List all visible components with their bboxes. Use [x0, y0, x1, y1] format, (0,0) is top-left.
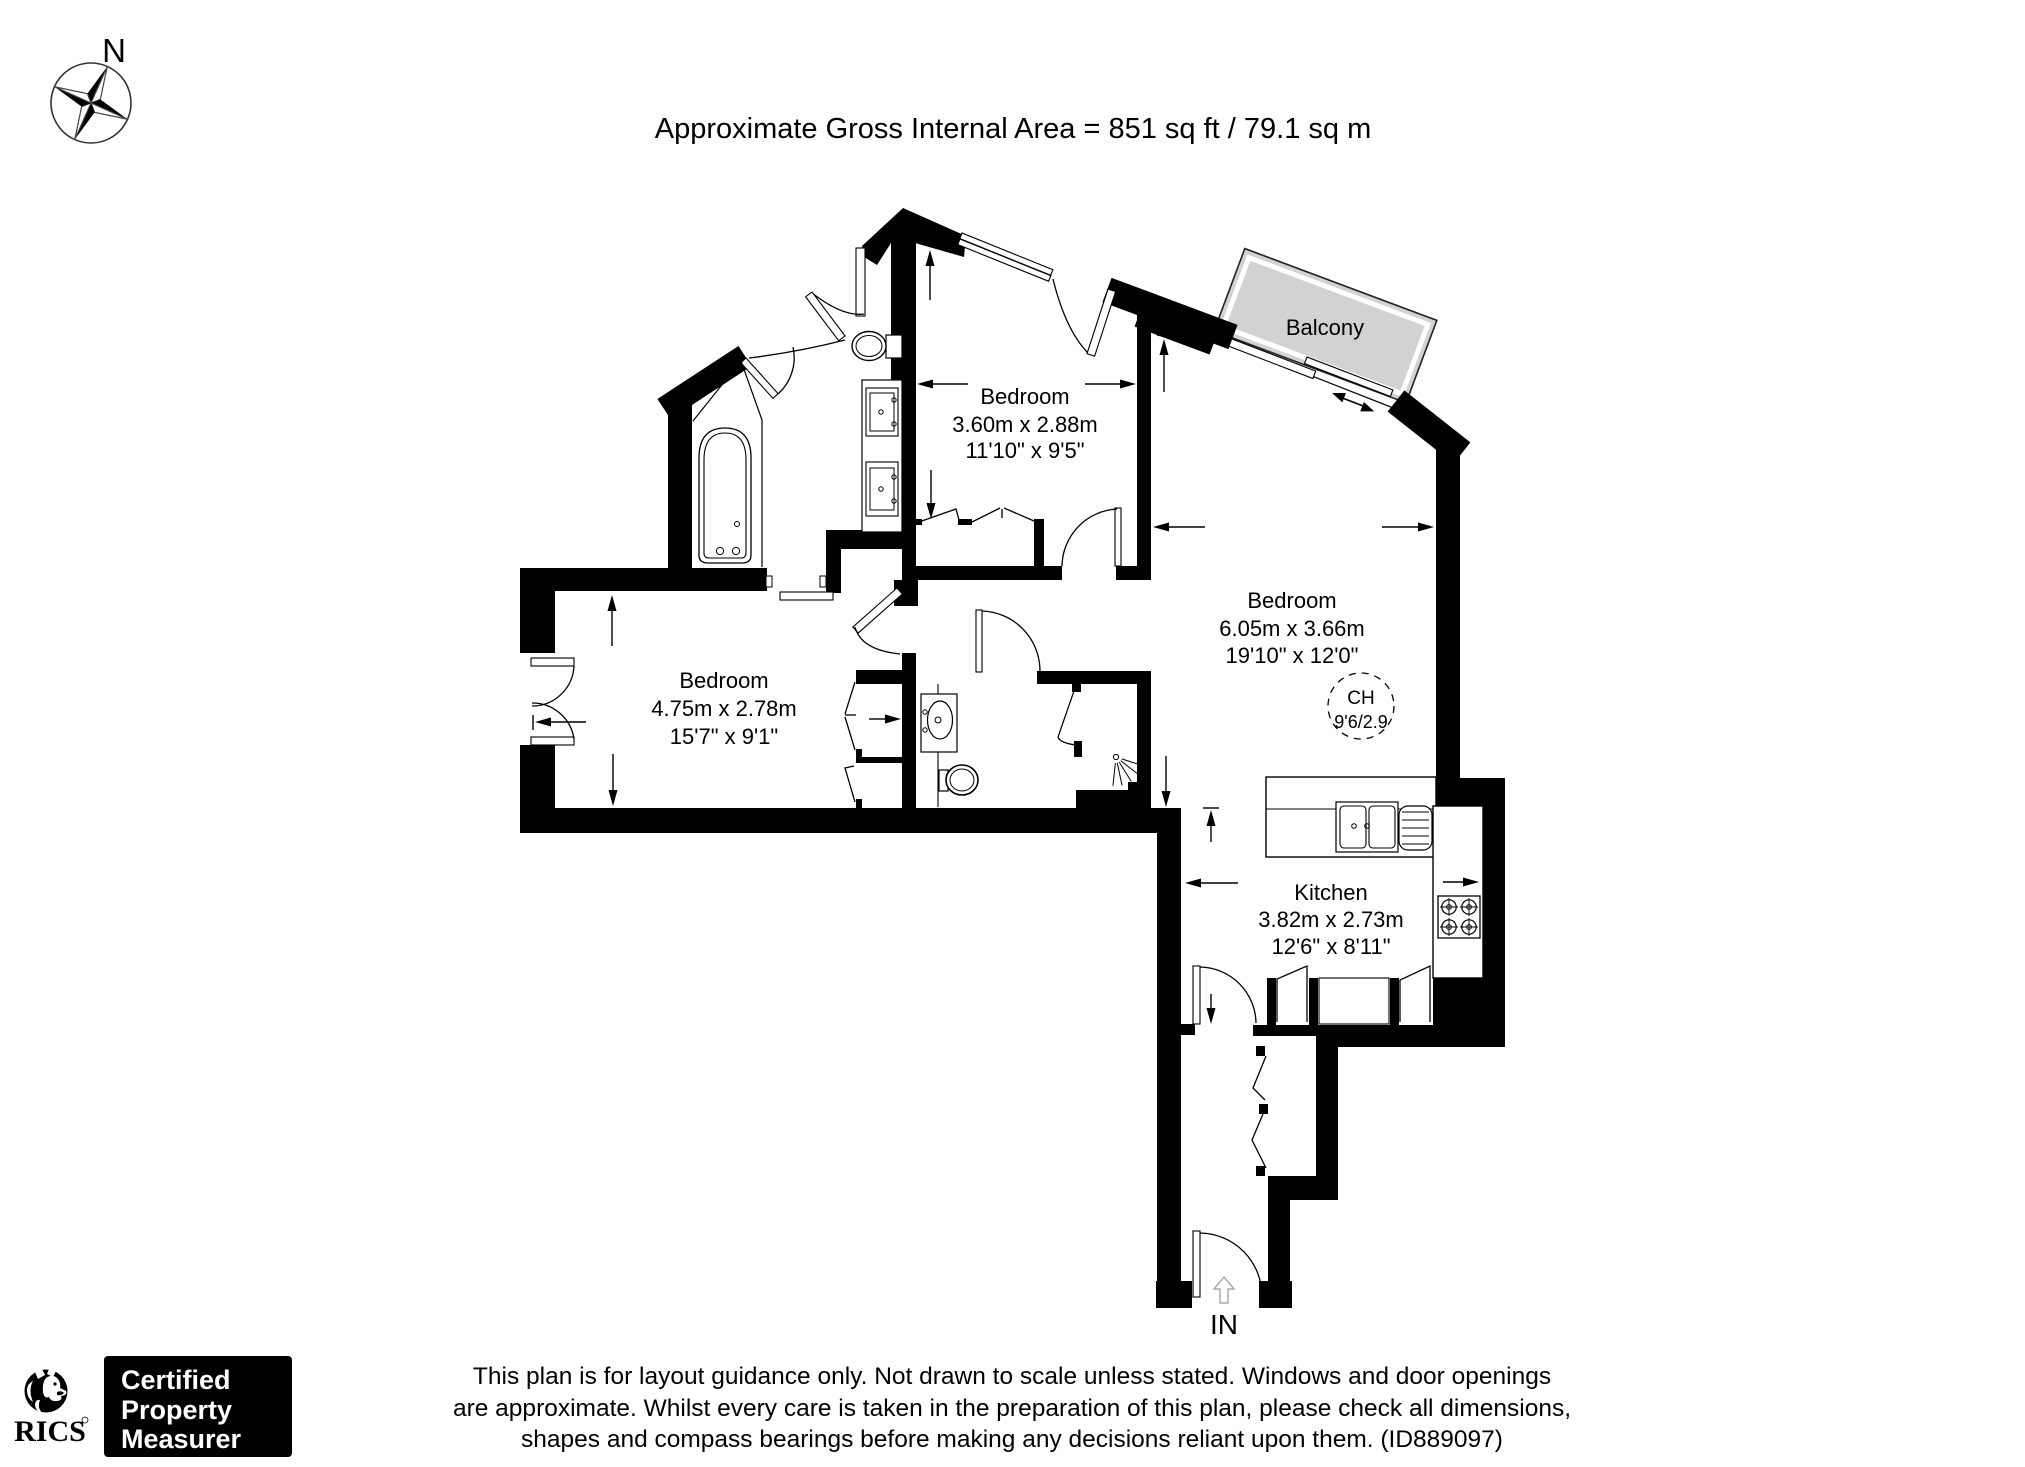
svg-text:Balcony: Balcony [1286, 315, 1364, 340]
svg-text:19'10" x 12'0": 19'10" x 12'0" [1226, 643, 1359, 668]
svg-text:15'7" x 9'1": 15'7" x 9'1" [670, 724, 778, 749]
svg-text:Bedroom: Bedroom [980, 384, 1069, 409]
svg-text:IN: IN [1210, 1309, 1238, 1340]
svg-text:3.82m x 2.73m: 3.82m x 2.73m [1258, 907, 1404, 932]
svg-text:Property: Property [121, 1395, 232, 1425]
svg-text:Measurer: Measurer [121, 1424, 242, 1454]
svg-text:Certified: Certified [121, 1365, 231, 1395]
svg-text:shapes and compass bearings be: shapes and compass bearings before makin… [521, 1426, 1503, 1453]
svg-text:CH: CH [1347, 688, 1374, 709]
svg-text:12'6" x 8'11": 12'6" x 8'11" [1271, 934, 1390, 959]
svg-text:11'10" x 9'5": 11'10" x 9'5" [965, 438, 1084, 463]
svg-text:3.60m x 2.88m: 3.60m x 2.88m [952, 412, 1098, 437]
svg-text:This plan is for layout guidan: This plan is for layout guidance only. N… [473, 1363, 1551, 1390]
svg-text:N: N [102, 32, 126, 69]
svg-text:RICS: RICS [14, 1415, 86, 1448]
svg-text:Kitchen: Kitchen [1294, 880, 1367, 905]
svg-text:Approximate Gross Internal Are: Approximate Gross Internal Area = 851 sq… [655, 113, 1372, 145]
svg-text:4.75m x 2.78m: 4.75m x 2.78m [651, 696, 797, 721]
svg-text:are approximate. Whilst every: are approximate. Whilst every care is ta… [453, 1395, 1571, 1422]
svg-text:Bedroom: Bedroom [1247, 588, 1336, 613]
svg-text:Bedroom: Bedroom [679, 668, 768, 693]
svg-text:6.05m x 3.66m: 6.05m x 3.66m [1219, 616, 1365, 641]
svg-text:9'6/2.9: 9'6/2.9 [1334, 712, 1387, 732]
